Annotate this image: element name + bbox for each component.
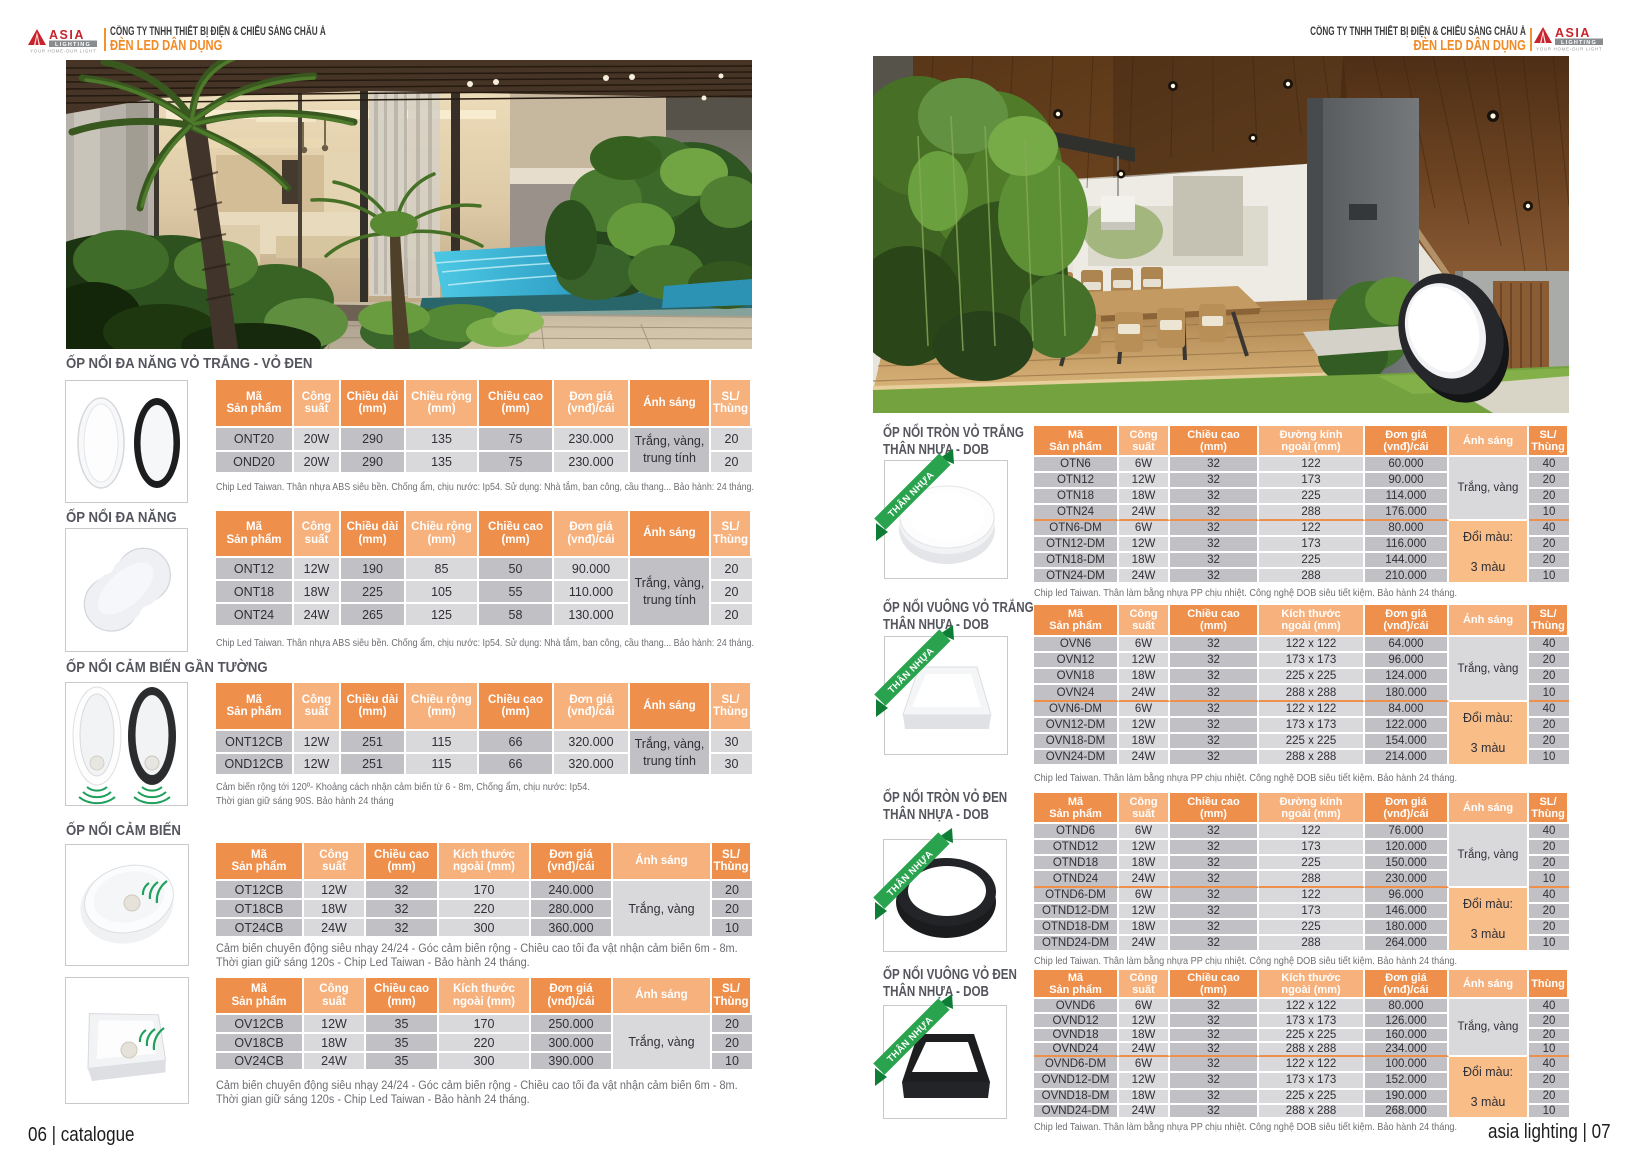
svg-text:ASIA: ASIA (1555, 26, 1591, 40)
svg-text:LIGHTING: LIGHTING (55, 42, 91, 48)
svg-text:THÂN NHỰA: THÂN NHỰA (884, 1014, 935, 1065)
svg-text:LIGHTING: LIGHTING (1561, 40, 1597, 46)
svg-text:YOUR HOME-OUR LIGHT: YOUR HOME-OUR LIGHT (30, 49, 96, 54)
svg-text:THÂN NHỰA: THÂN NHỰA (885, 469, 936, 520)
svg-text:THÂN NHỰA: THÂN NHỰA (885, 645, 936, 696)
svg-text:THÂN NHỰA: THÂN NHỰA (884, 848, 935, 899)
svg-text:YOUR HOME-OUR LIGHT: YOUR HOME-OUR LIGHT (1536, 47, 1602, 52)
svg-text:ASIA: ASIA (49, 28, 85, 42)
